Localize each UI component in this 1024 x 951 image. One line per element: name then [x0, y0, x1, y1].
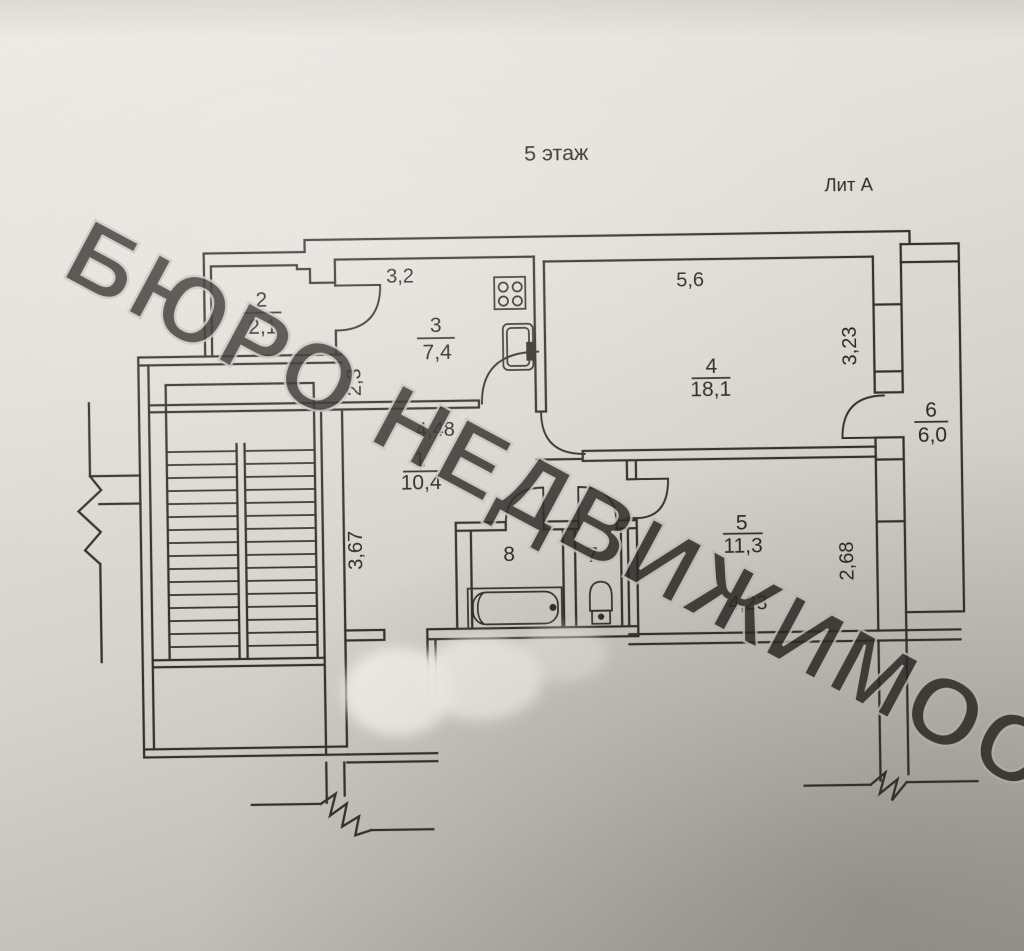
- dim-kitchen-top: 3,2: [386, 265, 414, 287]
- page-title: 5 этаж: [524, 141, 589, 166]
- dim-room4-right: 3,23: [839, 326, 862, 365]
- scanned-floor-plan-photo: 5 этаж Лит А 2 2,1 3 7,4 4 18,1 1 10,4 5…: [0, 0, 1024, 951]
- stair-treads: [168, 450, 318, 660]
- erasure-smudge: [342, 626, 609, 737]
- stove-icon: [494, 277, 525, 309]
- room-3-area: 7,4: [422, 341, 452, 364]
- sink-icon: [503, 324, 535, 370]
- liter-label: Лит А: [824, 174, 873, 196]
- dim-room5-right: 2,68: [836, 541, 859, 580]
- room-5-number: 5: [736, 512, 748, 535]
- dim-hall-left: 3,67: [345, 531, 368, 570]
- dim-room4-top: 5,6: [676, 269, 704, 291]
- floor-plan-drawing: 5 этаж Лит А 2 2,1 3 7,4 4 18,1 1 10,4 5…: [0, 0, 1024, 951]
- room-8-number: 8: [503, 543, 515, 566]
- room-4-number: 4: [705, 355, 717, 378]
- bathtub-icon: [468, 587, 563, 628]
- room-4-area: 18,1: [690, 378, 731, 402]
- room-6-number: 6: [925, 399, 937, 422]
- room-6-area: 6,0: [918, 424, 948, 447]
- room-3-number: 3: [430, 314, 442, 337]
